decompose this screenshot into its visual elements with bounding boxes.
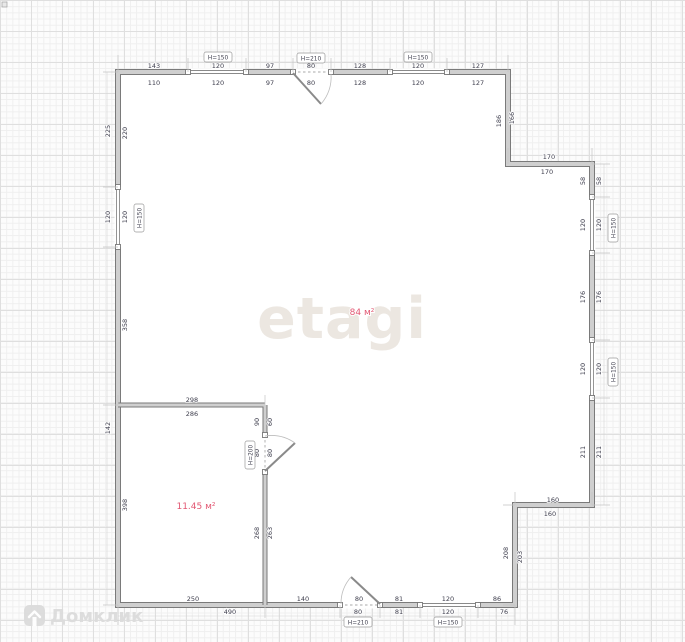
dim-partition-above: 298 [186, 396, 198, 404]
dim-step-tr-h-above: 170 [543, 153, 555, 161]
dim-right-outer-5: 211 [595, 446, 603, 458]
dim-step-tr-h-below: 170 [541, 168, 553, 176]
height-tag-window-right-lower: Н=150 [608, 358, 618, 386]
height-tag-window-top-left: Н=150 [204, 52, 232, 62]
dim-bottom-above-3: 81 [395, 595, 403, 603]
dim-left-outer-1: 225 [104, 125, 112, 137]
domklik-logo: Домклик [24, 605, 143, 627]
dim-bottom-below-1: 80 [354, 608, 362, 616]
svg-text:Н=210: Н=210 [348, 621, 369, 627]
dim-left-inner-3: 358 [121, 319, 129, 331]
dim-bottom-above-5: 86 [493, 595, 501, 603]
dim-top-inner-5: 128 [354, 79, 366, 87]
height-tag-window-bottom: Н=150 [434, 617, 462, 627]
etagi-watermark: etagi [257, 286, 427, 352]
dim-bottom-above-1: 140 [297, 595, 309, 603]
svg-text:Н=200: Н=200 [249, 445, 255, 466]
dim-right-outer-4: 120 [595, 363, 603, 375]
dim-small-room-bottom: 250 [187, 595, 199, 603]
area-label-small-room: 11.45 м² [176, 502, 215, 512]
height-tag-window-right-upper: Н=150 [608, 214, 618, 242]
dim-bottom-below-4: 76 [500, 608, 508, 616]
dim-partition-below: 286 [186, 410, 198, 418]
dim-top-outer-5: 128 [354, 62, 366, 70]
dim-top-inner-1: 110 [148, 79, 160, 87]
height-tag-door-bottom: Н=210 [344, 617, 372, 627]
dim-top-inner-2: 120 [212, 79, 224, 87]
area-label-main-room: 84 м² [350, 308, 375, 318]
dim-top-inner-3: 97 [266, 79, 274, 87]
dim-left-inner-2: 120 [121, 211, 129, 223]
dim-partition-v-inner-2: 80 [266, 449, 274, 457]
dim-step-br-h-below: 160 [544, 510, 556, 518]
dim-bottom-below-2: 81 [395, 608, 403, 616]
dim-right-outer-3: 176 [595, 291, 603, 303]
domklik-house-icon [24, 605, 45, 626]
dim-partition-v-outer-1: 90 [253, 418, 261, 426]
dim-partition-v-outer-3: 268 [253, 527, 261, 539]
dim-step-tr-v-inner: 166 [508, 112, 516, 124]
height-tag-entry-door: Н=210 [297, 53, 325, 63]
svg-text:Н=150: Н=150 [408, 56, 429, 62]
floor-plan-svg: etagi [0, 0, 685, 642]
dim-step-tr-v-outer: 186 [495, 115, 503, 127]
floor-plan-canvas: etagi [0, 0, 685, 642]
dim-top-outer-2: 120 [212, 62, 224, 70]
dim-bottom-below-5: 490 [224, 608, 236, 616]
dim-bottom-below-3: 120 [442, 608, 454, 616]
dim-right-inner-4: 120 [579, 363, 587, 375]
dim-right-inner-5: 211 [579, 446, 587, 458]
dim-right-outer-1: 58 [595, 177, 603, 185]
dim-partition-v-inner-1: 60 [266, 418, 274, 426]
height-tag-interior-door: Н=200 [245, 441, 255, 469]
domklik-wordmark: Домклик [50, 606, 143, 627]
dim-right-inner-3: 176 [579, 291, 587, 303]
dim-top-inner-7: 127 [472, 79, 484, 87]
svg-text:Н=150: Н=150 [612, 362, 618, 383]
svg-text:Н=150: Н=150 [438, 621, 459, 627]
svg-text:Н=150: Н=150 [208, 56, 229, 62]
dim-step-br-v-outer: 208 [502, 547, 510, 559]
dim-top-outer-3: 97 [266, 62, 274, 70]
dim-top-inner-4: 80 [307, 79, 315, 87]
dim-left-inner-4: 398 [121, 499, 129, 511]
dim-step-br-v-inner: 203 [516, 551, 524, 563]
dim-top-outer-6: 120 [412, 62, 424, 70]
height-tag-window-left: Н=150 [134, 204, 144, 232]
dim-left-outer-2: 120 [104, 211, 112, 223]
corner-marker-icon [2, 2, 7, 7]
dim-top-outer-7: 127 [472, 62, 484, 70]
dim-partition-v-inner-3: 263 [266, 527, 274, 539]
dim-bottom-above-2: 80 [355, 595, 363, 603]
svg-text:Н=210: Н=210 [301, 57, 322, 63]
svg-text:Н=150: Н=150 [612, 218, 618, 239]
dim-left-outer-3: 142 [104, 422, 112, 434]
svg-text:Н=150: Н=150 [138, 208, 144, 229]
dim-step-br-h-above: 160 [547, 496, 559, 504]
height-tag-window-top-right: Н=150 [404, 52, 432, 62]
dim-top-outer-1: 143 [148, 62, 160, 70]
dim-top-inner-6: 120 [412, 79, 424, 87]
dim-right-inner-1: 58 [579, 177, 587, 185]
dim-bottom-above-4: 120 [442, 595, 454, 603]
dim-right-outer-2: 120 [595, 219, 603, 231]
dim-left-inner-1: 220 [121, 127, 129, 139]
dim-right-inner-2: 120 [579, 219, 587, 231]
